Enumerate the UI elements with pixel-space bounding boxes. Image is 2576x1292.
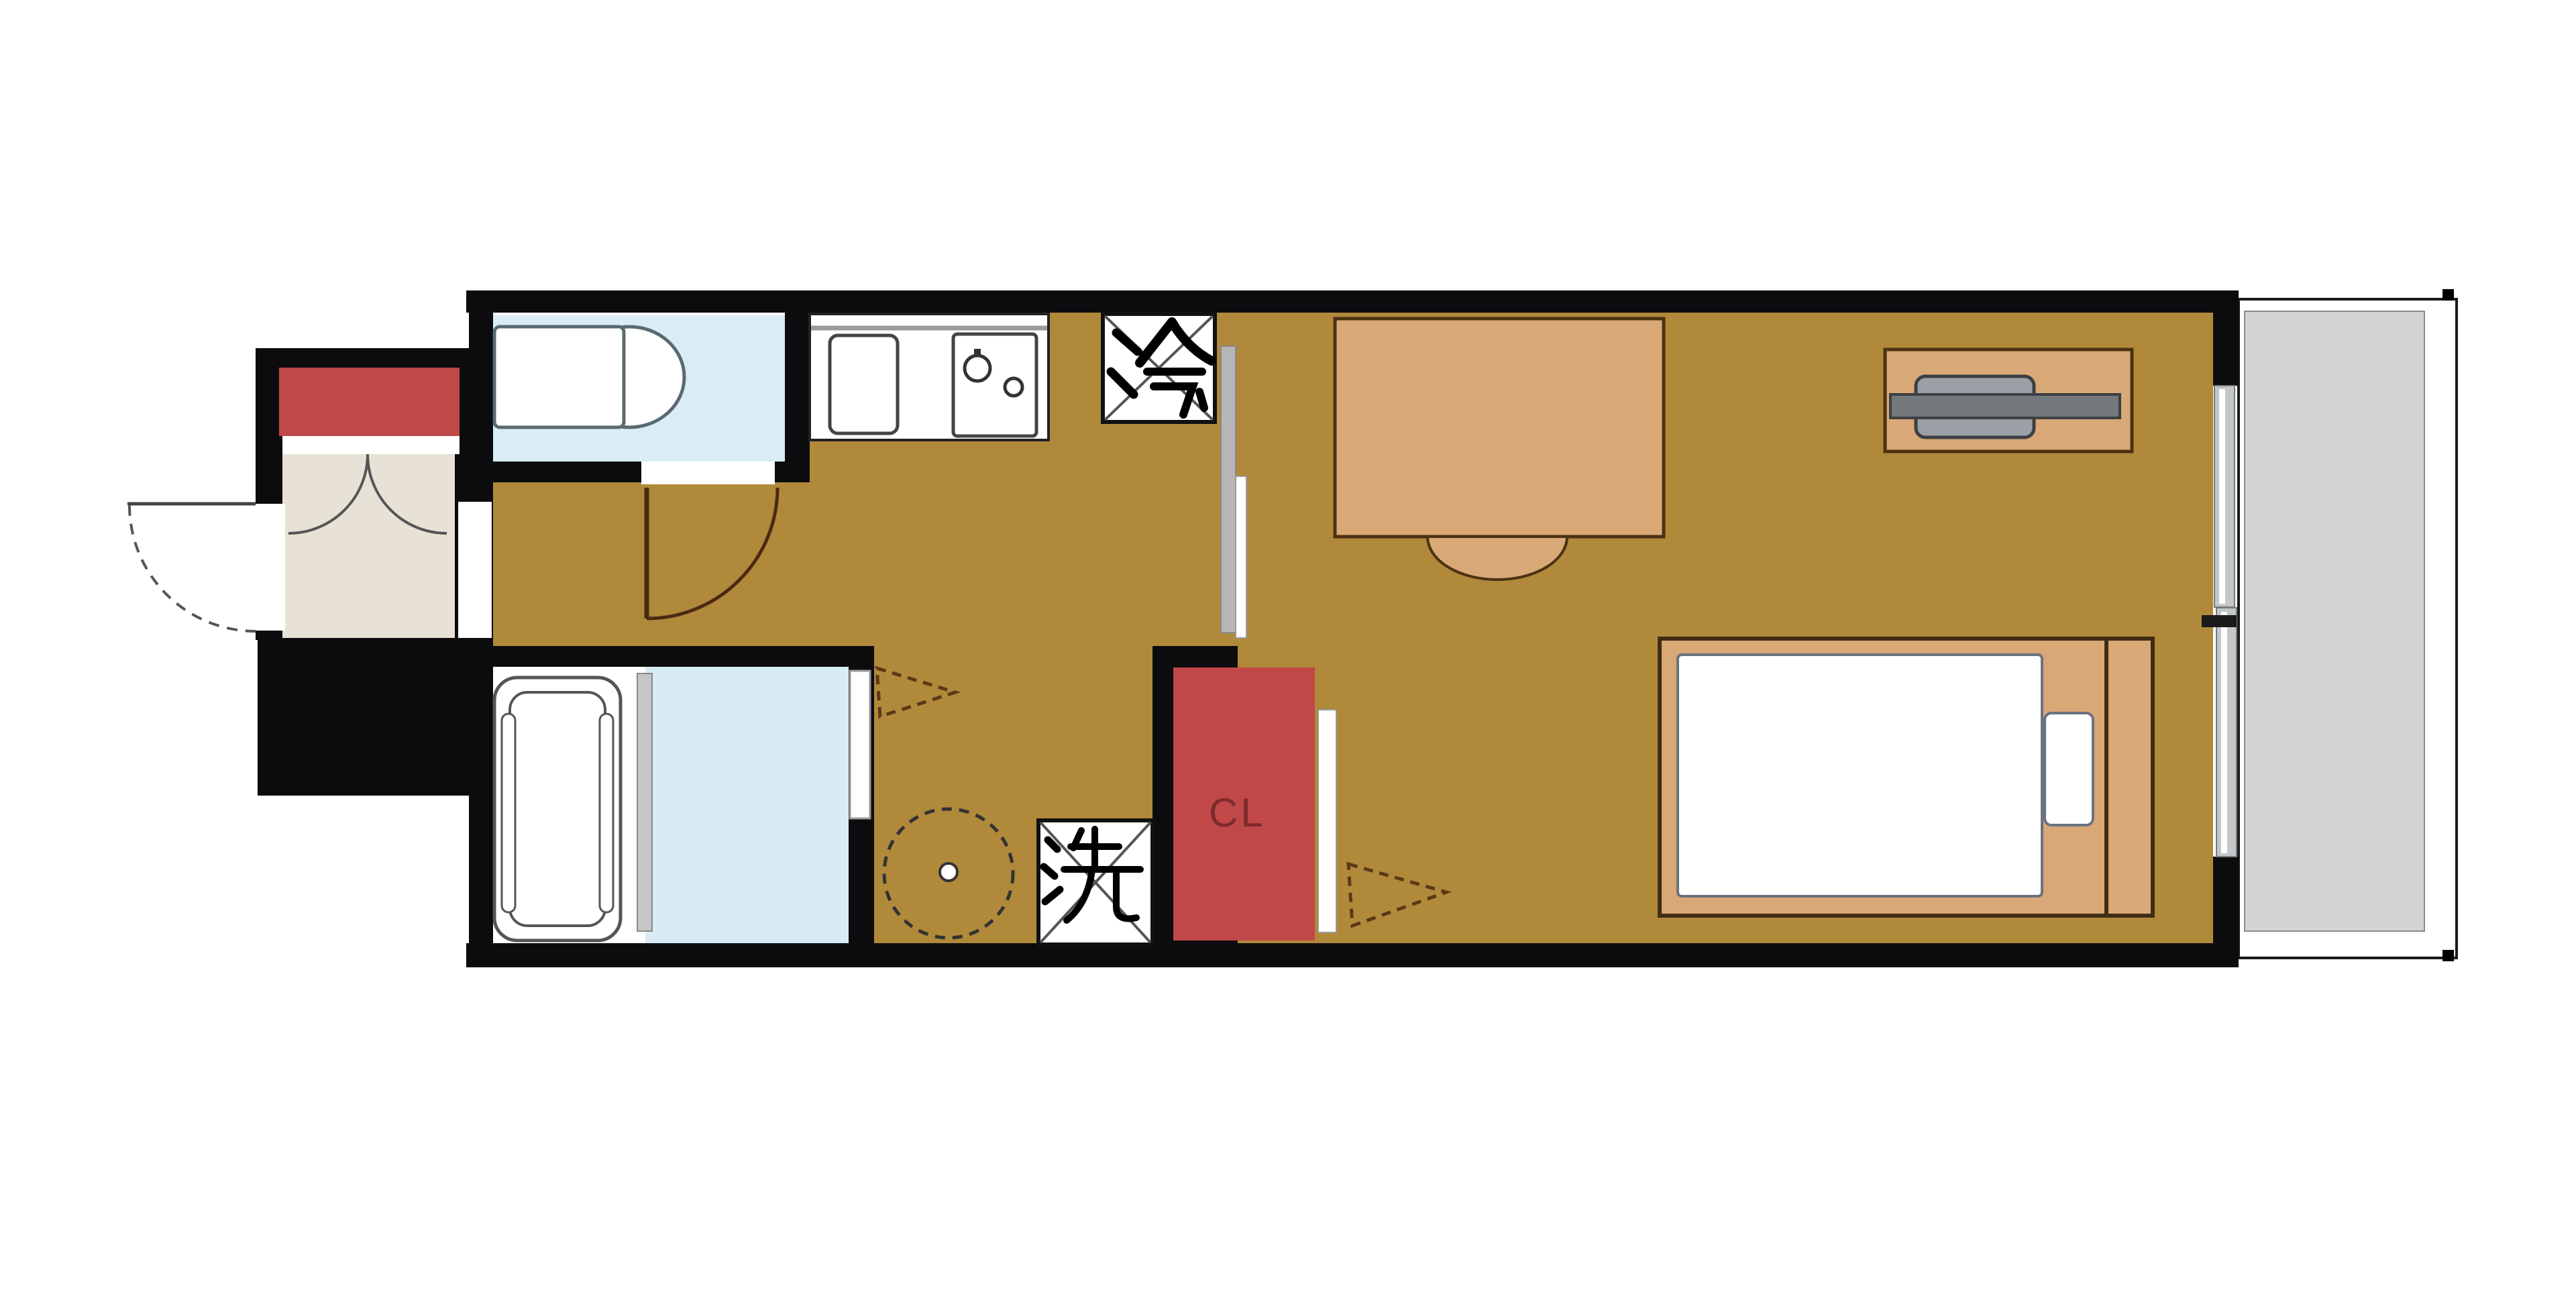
svg-text:CL: CL (1209, 790, 1266, 835)
